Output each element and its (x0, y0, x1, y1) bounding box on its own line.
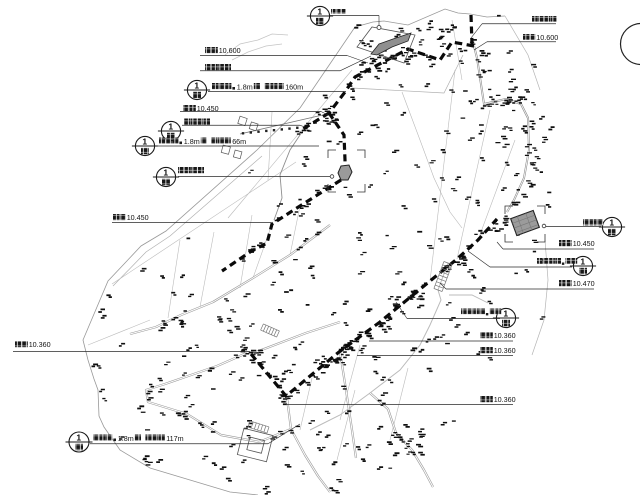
svg-text:10.600: 10.600 (536, 33, 558, 42)
svg-text:10.360: 10.360 (29, 340, 51, 349)
svg-text:160m: 160m (285, 83, 303, 92)
svg-text:66m: 66m (232, 137, 246, 146)
svg-text:10.360: 10.360 (494, 331, 516, 340)
svg-text:1: 1 (503, 308, 508, 318)
svg-text:10.450: 10.450 (573, 239, 595, 248)
svg-text:1: 1 (580, 256, 585, 266)
svg-text:1: 1 (194, 80, 199, 90)
svg-text:10.470: 10.470 (573, 279, 595, 288)
svg-text:1.8m: 1.8m (118, 434, 134, 443)
svg-text:10.450: 10.450 (127, 213, 149, 222)
svg-text:10.600: 10.600 (219, 46, 241, 55)
svg-text:1.8m: 1.8m (184, 137, 200, 146)
svg-text:117m: 117m (166, 434, 183, 443)
svg-text:1: 1 (317, 6, 322, 16)
svg-text:1: 1 (163, 167, 168, 177)
svg-text:1: 1 (168, 121, 173, 131)
svg-text:10.360: 10.360 (494, 346, 516, 355)
svg-text:1: 1 (76, 432, 81, 442)
svg-text:1: 1 (142, 136, 147, 146)
svg-text:1: 1 (609, 217, 614, 227)
svg-text:10.360: 10.360 (494, 395, 516, 404)
svg-text:1.8m: 1.8m (237, 83, 253, 92)
